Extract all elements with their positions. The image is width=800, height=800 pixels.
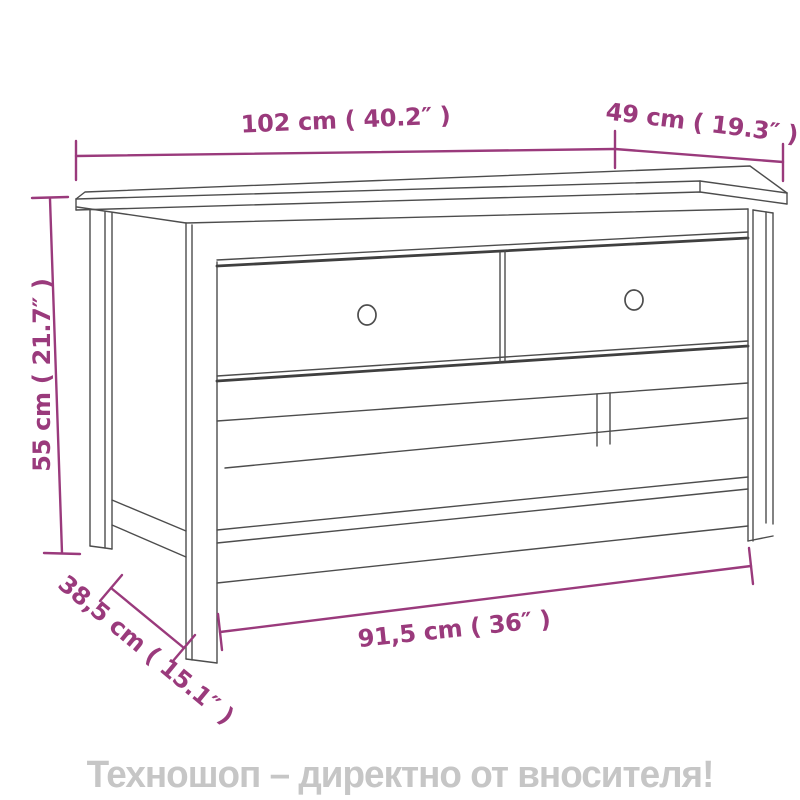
cabinet-front [77, 207, 748, 663]
dimension-height: 55 cm ( 21.7″ ) [28, 197, 80, 554]
back-left-leg [90, 210, 112, 549]
dimension-width: 102 cm ( 40.2″ ) [76, 101, 615, 180]
drawer-knob-right [625, 290, 643, 310]
left-side-rail [112, 500, 186, 557]
product-dimension-diagram: 102 cm ( 40.2″ ) 49 cm ( 19.3″ ) 55 cm (… [0, 0, 800, 800]
right-side-legs [748, 209, 773, 541]
table-top [76, 166, 787, 210]
drawer-knob-left [358, 305, 376, 325]
dimension-base-depth-label: 38,5 cm ( 15.1″ ) [53, 569, 240, 730]
dimension-width-label: 102 cm ( 40.2″ ) [240, 101, 451, 138]
diagram-svg: 102 cm ( 40.2″ ) 49 cm ( 19.3″ ) 55 cm (… [0, 0, 800, 800]
dimension-depth-label: 49 cm ( 19.3″ ) [604, 97, 799, 148]
dimension-base-depth: 38,5 cm ( 15.1″ ) [53, 569, 240, 730]
dimension-height-label: 55 cm ( 21.7″ ) [28, 278, 56, 471]
table-drawing [76, 166, 787, 663]
bottom-shelf [217, 393, 748, 583]
footer-banner: Техношоп – директно от вносителя! [12, 753, 788, 800]
footer-text: Техношоп – директно от вносителя! [87, 754, 714, 796]
dimension-base-width: 91,5 cm ( 36″ ) [218, 548, 753, 653]
